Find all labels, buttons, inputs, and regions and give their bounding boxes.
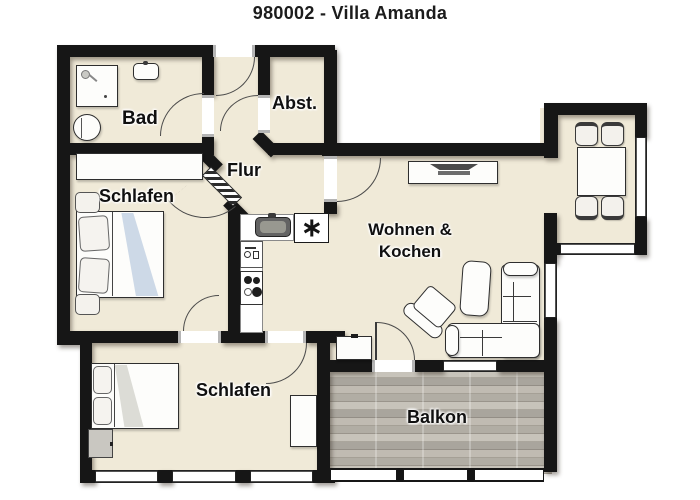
dishwasher-icon [245,247,256,249]
kitchen-faucet-icon [268,213,276,218]
wall-segment [544,213,557,263]
dishwasher-icon [244,251,251,258]
wall-segment [317,337,330,474]
wall-segment [635,103,647,137]
pillow [78,215,110,252]
room-label-schlafen-1: Schlafen [99,186,174,207]
wall-segment [322,143,557,156]
wardrobe [76,153,203,180]
wall-segment [236,470,250,483]
dining-chair [601,122,624,146]
cabinet-knob [351,334,358,338]
window-schlafen-2-3 [250,470,313,483]
pillow [93,366,112,394]
wall-segment [635,243,647,255]
sofa-seam [513,282,514,322]
desk [290,395,317,447]
shower [76,65,118,107]
sofa-seam [482,330,483,356]
bed-blanket [104,365,164,427]
nightstand [88,429,113,458]
bed-headboard-line [114,364,115,427]
balcony-railing-segment [474,468,544,482]
kitchen-sink [255,217,291,237]
balcony-railing-segment [330,468,397,482]
wall-segment [324,50,337,143]
dishwasher [240,241,263,268]
room-label-flur: Flur [227,160,261,181]
wall-segment [202,57,214,95]
dining-chair [575,122,598,146]
wall-segment [158,470,172,483]
window-essplatz-ost [635,137,647,217]
bathroom-sink [133,63,159,80]
sofa-seam [503,321,537,322]
sofa-armrest [503,262,538,276]
room-label-balkon: Balkon [407,407,467,428]
shower-hose-icon [89,74,98,82]
balcony-railing-segment [403,468,468,482]
pillow [78,257,110,294]
toilet-seat-line [81,118,82,138]
wall-segment [268,143,324,155]
wall-segment [57,45,70,345]
tv-sideboard [408,161,498,184]
door-wohnen [324,156,337,202]
room-label-wohnen-line2: Kochen [350,241,470,263]
sofa-section-horizontal [447,323,540,358]
door-schlafen-1-schlafen-2 [178,331,221,343]
wall-segment [317,360,372,372]
nightstand [75,294,100,315]
window-wohnen-sued [443,360,497,372]
toilet [73,114,101,141]
window-wohnen-ost [544,263,557,318]
dining-chair [601,196,624,220]
room-label-bad: Bad [122,108,158,130]
wall-segment [57,45,213,57]
dining-table [577,147,626,196]
wall-segment [80,470,95,483]
wall-segment [258,50,270,95]
stove-burner [253,277,260,284]
wall-segment [552,243,560,255]
wall-segment [544,318,557,372]
tv-icon [438,171,470,175]
balcony-railing-post [468,468,474,482]
bed-headboard-line [112,212,113,296]
sofa-armrest [445,325,459,356]
nightstand [75,192,100,213]
room-label-schlafen-2: Schlafen [196,380,271,401]
wall-segment [544,103,647,115]
sofa-seam [460,337,502,338]
coffee-table [459,260,492,317]
stove-burner [244,288,252,296]
balcony-railing-post [397,468,403,482]
room-label-abstellraum: Abst. [272,93,317,114]
kitchen-sink-basin [260,221,286,233]
room-label-wohnen-line1: Wohnen & [350,219,470,241]
stove-burner [252,287,262,297]
fridge-freezer [294,213,329,243]
cabinet [336,336,372,360]
pillow [93,397,112,425]
window-essplatz-sued [560,243,635,255]
stove [240,271,263,305]
door-balkon [372,360,415,372]
floor-plan: 980002 - Villa Amanda [0,0,700,500]
nightstand-knob [110,442,113,446]
bathroom-sink-faucet-icon [143,61,148,65]
tv-icon [430,164,478,170]
door-entry [213,45,255,57]
door-schlafen-2 [265,331,306,343]
dishwasher-icon [253,251,259,259]
door-abstellraum [258,95,270,133]
shower-drain-icon [104,95,107,98]
dining-chair [575,196,598,220]
sofa-seam [503,296,531,297]
stove-burner [244,276,252,284]
wall-segment [62,331,178,343]
window-schlafen-2-1 [95,470,158,483]
door-leaf-balkon [375,322,377,360]
wall-segment [544,372,557,472]
room-label-wohnen-kochen: Wohnen & Kochen [350,219,470,263]
window-schlafen-2-2 [172,470,236,483]
wall-segment [415,360,443,372]
